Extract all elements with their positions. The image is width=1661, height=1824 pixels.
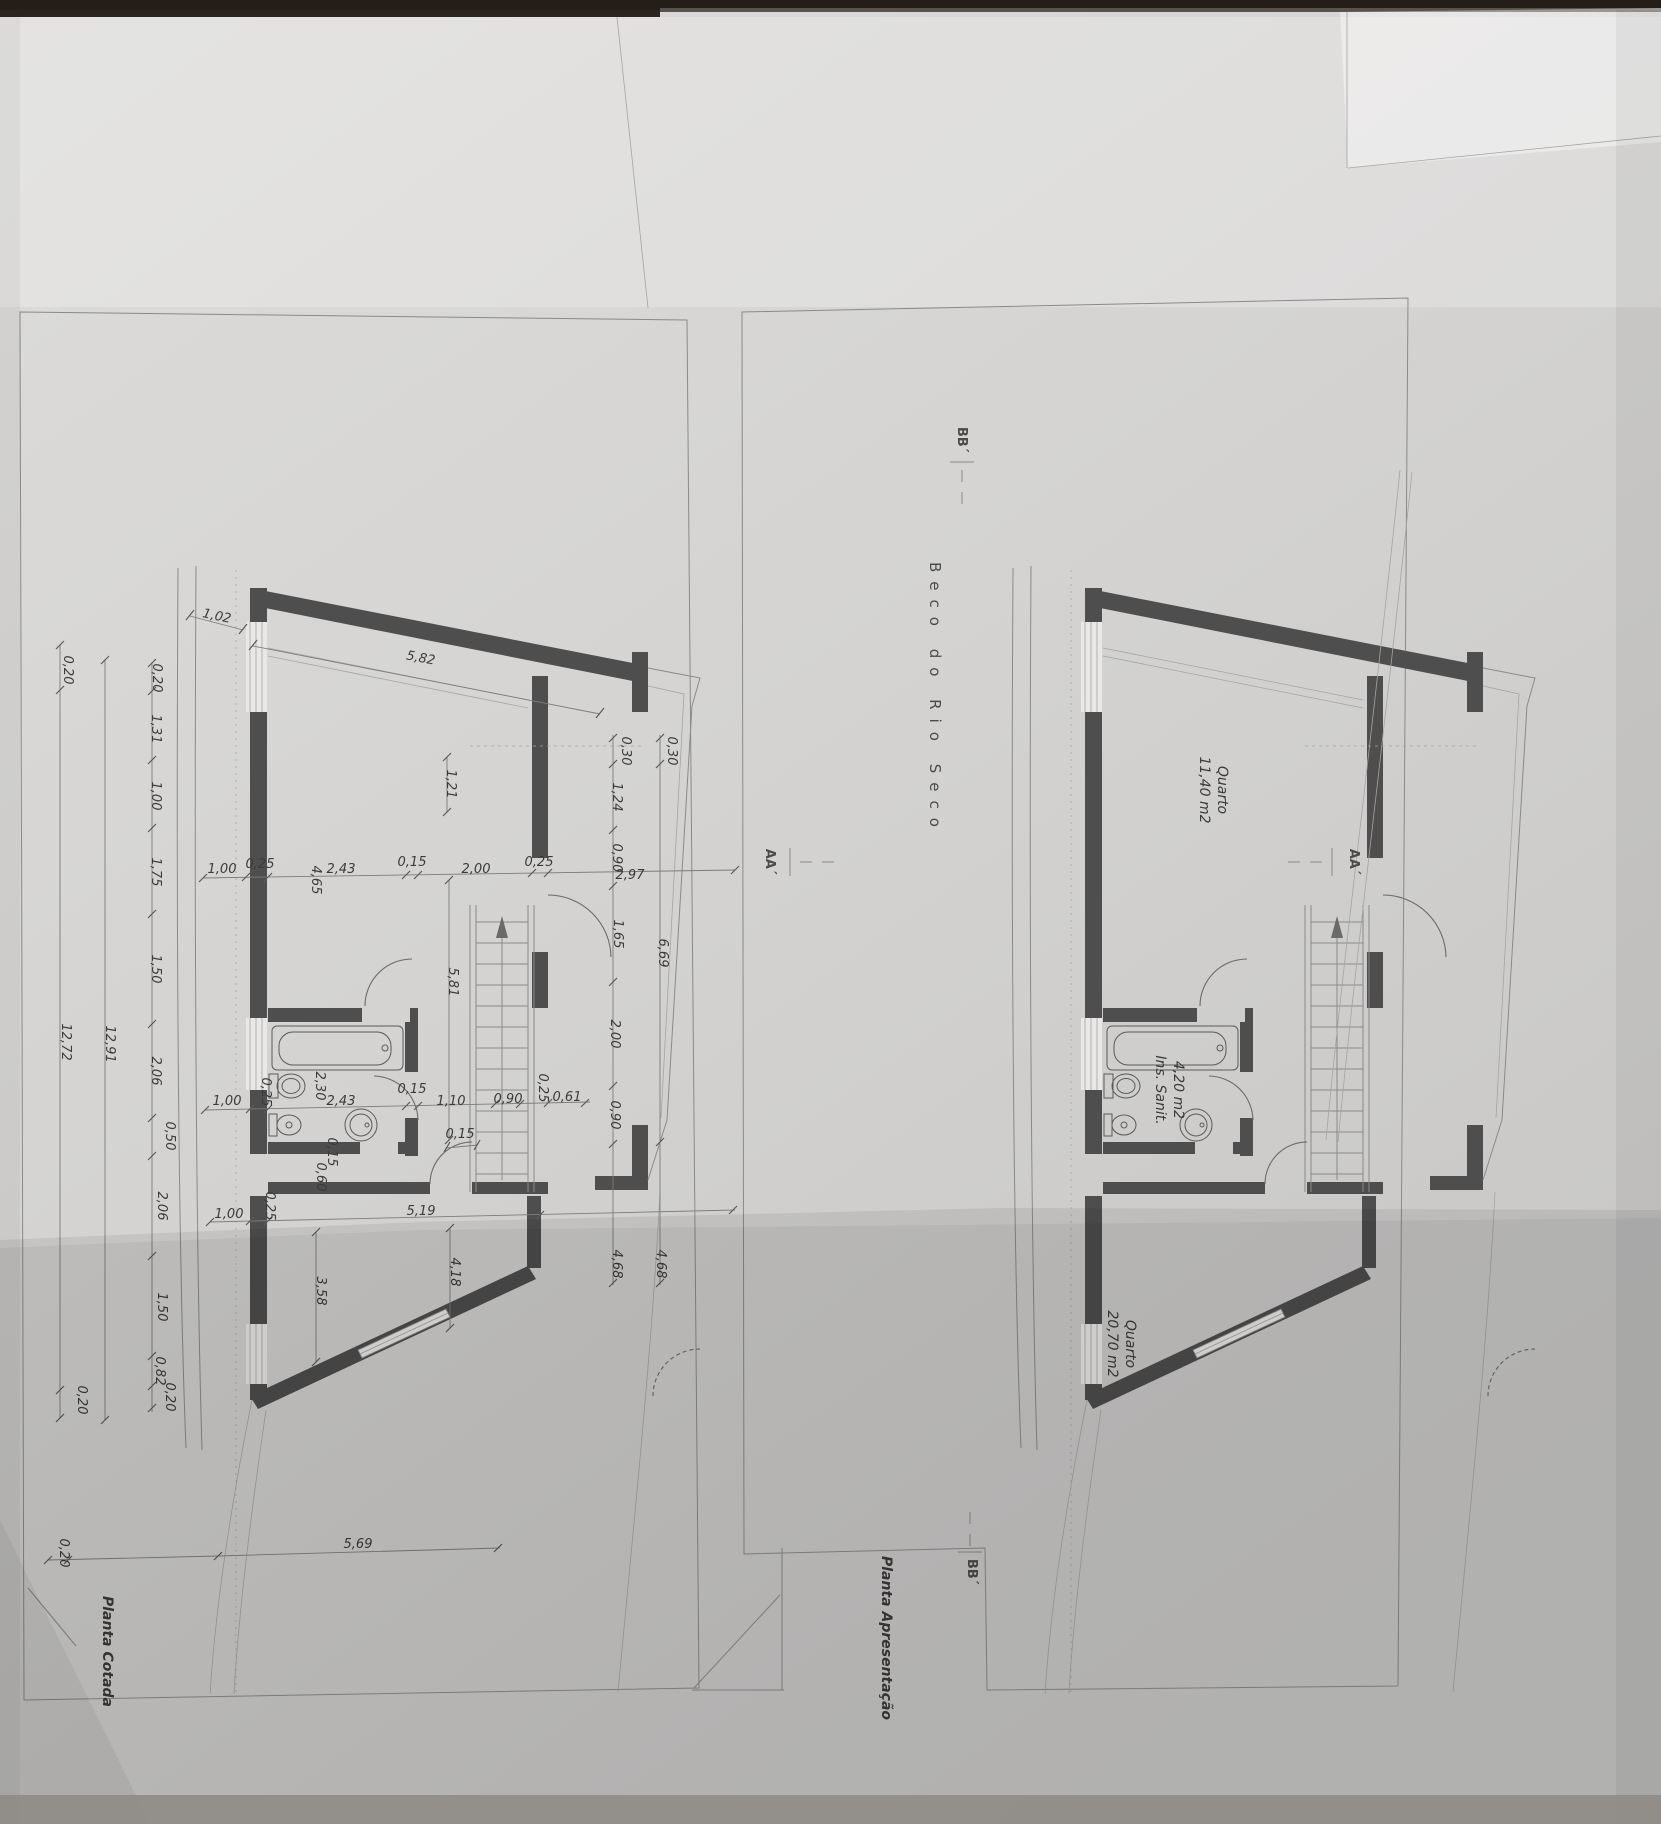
room-label-quarto1-area: 11,40 m2 [1196,756,1212,823]
section-label-bb-top: BB´ [954,427,969,453]
dim-label: 0,50 [162,1122,177,1151]
room-label-quarto1-name: Quarto [1214,766,1230,814]
dim-label: 0,15 [398,855,427,870]
room-label-sanit-name: Ins. Sanit. [1152,1055,1168,1124]
dim-label: 2,43 [327,862,356,877]
dim-label: 2,00 [607,1020,622,1049]
dim-label: 0,25 [525,855,554,870]
dim-label: 5,19 [407,1204,436,1219]
dim-label: 1,31 [148,715,163,744]
dim-label: 2,00 [462,862,491,877]
dim-label: 1,10 [437,1094,466,1109]
sheet-corner-fold [1340,8,1661,168]
dim-label: 0,25 [535,1074,550,1103]
dim-label: 0,90 [494,1092,523,1107]
floor-plan-drawing: 1,02 5,82 0,20 12,72 0,20 12,91 0,20 1,3… [0,0,1661,1824]
dim-label: 0,15 [446,1127,475,1142]
dim-label: 2,30 [312,1072,327,1101]
dim-label: 0,25 [258,1078,273,1107]
section-label-aa-right: AA´ [1346,849,1361,876]
dim-label: 2,06 [148,1057,163,1086]
dim-label: 1,75 [148,858,163,887]
dim-label: 1,24 [609,783,624,812]
dim-label: 1,00 [213,1094,242,1109]
dim-label: 2,43 [327,1094,356,1109]
dim-label: 0,30 [664,737,679,766]
dim-label: 1,00 [148,782,163,811]
dim-label: 0,90 [607,1101,622,1130]
dim-label: 5,81 [445,968,460,997]
dim-label: 0,30 [618,737,633,766]
dim-label: 4,65 [308,866,323,895]
dim-label: 0,20 [60,656,75,685]
dim-label: 12,72 [58,1023,73,1060]
dim-label: 0,15 [398,1082,427,1097]
dim-label: 0,25 [246,857,275,872]
dim-label: 0,20 [149,664,164,693]
dim-label: 0,61 [553,1090,582,1105]
dim-label: 0,90 [609,844,624,873]
dim-label: 1,65 [610,920,625,949]
dim-label: 1,50 [148,955,163,984]
dim-label: 1,00 [215,1207,244,1222]
dim-label: 0,60 [313,1163,328,1192]
dim-label: 0,25 [262,1192,277,1221]
dim-label: 1,00 [208,862,237,877]
scanned-plan-sheet: 1,02 5,82 0,20 12,72 0,20 12,91 0,20 1,3… [0,0,1661,1824]
dim-label: 6,69 [655,939,670,968]
dim-label: 12,91 [102,1025,117,1062]
dim-label: 1,21 [443,770,458,799]
section-label-aa-left: AA´ [762,849,777,876]
dim-label: 2,06 [154,1192,169,1221]
street-label: Beco do Rio Seco [926,562,944,836]
room-label-sanit-area: 4,20 m2 [1170,1061,1186,1119]
